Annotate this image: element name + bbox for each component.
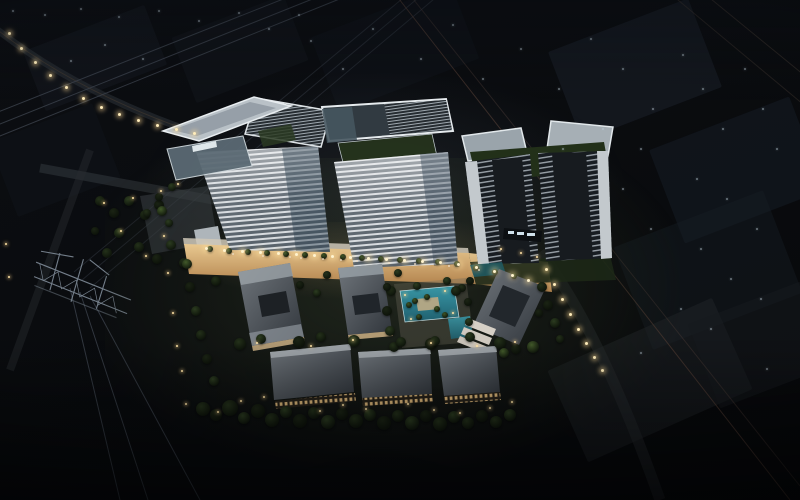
light-dot [527, 279, 530, 282]
light-dot [593, 356, 596, 359]
distant-light [700, 248, 702, 250]
distant-light [776, 148, 778, 150]
pedestrian-speck [340, 259, 342, 261]
distant-light [104, 44, 106, 46]
light-dot [8, 32, 11, 35]
distant-light [682, 54, 684, 56]
light-dot [421, 260, 424, 263]
light-dot [145, 255, 147, 257]
distant-light [722, 128, 724, 130]
light-dot [511, 274, 514, 277]
distant-light [762, 108, 764, 110]
distant-light [622, 68, 624, 70]
light-dot [259, 251, 262, 254]
light-dot [407, 403, 409, 405]
distant-light [652, 108, 654, 110]
pedestrian-speck [356, 260, 358, 262]
light-dot [185, 403, 187, 405]
pedestrian-speck [232, 253, 234, 255]
light-dot [561, 298, 564, 301]
light-dot [277, 252, 280, 255]
light-dot [49, 74, 52, 77]
light-dot [177, 183, 179, 185]
light-dot [223, 249, 226, 252]
light-dot [65, 86, 68, 89]
pedestrian-speck [300, 257, 302, 259]
distant-light [482, 78, 484, 80]
light-dot [34, 61, 37, 64]
light-dot [8, 276, 10, 278]
distant-light [710, 328, 712, 330]
light-dot [553, 283, 556, 286]
distant-light [198, 20, 200, 22]
light-dot [585, 342, 588, 345]
light-dot [331, 255, 334, 258]
distant-light [702, 88, 704, 90]
light-dot [205, 247, 208, 250]
light-dot [100, 106, 103, 109]
light-dot [163, 235, 165, 237]
distant-light [342, 68, 344, 70]
light-dot [476, 345, 478, 347]
distant-light [756, 228, 758, 230]
distant-light [640, 352, 642, 354]
light-dot [536, 256, 538, 258]
distant-light [730, 278, 732, 280]
distant-light [80, 8, 82, 10]
light-dot [175, 128, 178, 131]
light-dot [172, 312, 174, 314]
light-dot [520, 252, 522, 254]
light-dot [156, 124, 159, 127]
light-dot [439, 261, 442, 264]
light-dot [430, 342, 432, 344]
light-dot [511, 401, 513, 403]
pedestrian-speck [478, 269, 480, 271]
distant-light [520, 48, 522, 50]
pedestrian-speck [322, 258, 324, 260]
light-dot [457, 263, 460, 266]
light-dot [82, 97, 85, 100]
light-dot [193, 132, 196, 135]
distant-light [238, 12, 240, 14]
distant-light [680, 308, 682, 310]
distant-light [70, 60, 72, 62]
pedestrian-speck [414, 263, 416, 265]
light-dot [352, 339, 354, 341]
light-dot [118, 113, 121, 116]
distant-light [590, 38, 592, 40]
light-dot [410, 318, 412, 320]
distant-light [760, 298, 762, 300]
light-dot [137, 119, 140, 122]
distant-light [310, 40, 312, 42]
distant-light [558, 88, 560, 90]
pedestrian-speck [388, 262, 390, 264]
distant-light [372, 28, 374, 30]
light-dot [319, 410, 321, 412]
light-dot [160, 190, 162, 192]
light-dot [500, 248, 502, 250]
distant-light [650, 228, 652, 230]
light-dot [240, 400, 242, 402]
light-dot [263, 396, 265, 398]
distant-light [12, 10, 14, 12]
light-dot [385, 258, 388, 261]
light-dot [132, 197, 134, 199]
distant-light [268, 28, 270, 30]
light-dot [365, 408, 367, 410]
light-dot [444, 290, 446, 292]
light-dot [569, 313, 572, 316]
distant-light [118, 16, 120, 18]
light-dot [217, 411, 219, 413]
light-dot [404, 294, 406, 296]
light-dot [295, 253, 298, 256]
light-dot [256, 342, 258, 344]
light-dot [103, 202, 105, 204]
distant-light [562, 148, 564, 150]
light-dot [241, 250, 244, 253]
light-dot [601, 369, 604, 372]
distant-light [452, 24, 454, 26]
pedestrian-speck [448, 265, 450, 267]
light-dot [489, 407, 491, 409]
pedestrian-speck [289, 256, 291, 258]
distant-light [158, 10, 160, 12]
site-lights [0, 0, 800, 500]
distant-light [640, 148, 642, 150]
light-dot [367, 257, 370, 260]
light-dot [452, 312, 454, 314]
light-dot [403, 259, 406, 262]
light-dot [545, 268, 548, 271]
light-dot [313, 254, 316, 257]
light-dot [433, 409, 435, 411]
distant-light [744, 68, 746, 70]
distant-light [298, 14, 300, 16]
light-dot [181, 370, 183, 372]
light-dot [20, 47, 23, 50]
pedestrian-speck [262, 255, 264, 257]
light-dot [514, 341, 516, 343]
distant-light [726, 198, 728, 200]
distant-light [766, 368, 768, 370]
light-dot [176, 345, 178, 347]
light-dot [493, 270, 496, 273]
distant-light [622, 188, 624, 190]
light-dot [310, 345, 312, 347]
light-dot [349, 256, 352, 259]
light-dot [167, 272, 169, 274]
distant-light [420, 58, 422, 60]
light-dot [5, 243, 7, 245]
distant-light [44, 14, 46, 16]
distant-light [602, 128, 604, 130]
light-dot [577, 328, 580, 331]
aerial-night-render [0, 0, 800, 500]
distant-light [696, 178, 698, 180]
light-dot [120, 230, 122, 232]
light-dot [459, 412, 461, 414]
distant-light [142, 58, 144, 60]
light-dot [342, 404, 344, 406]
